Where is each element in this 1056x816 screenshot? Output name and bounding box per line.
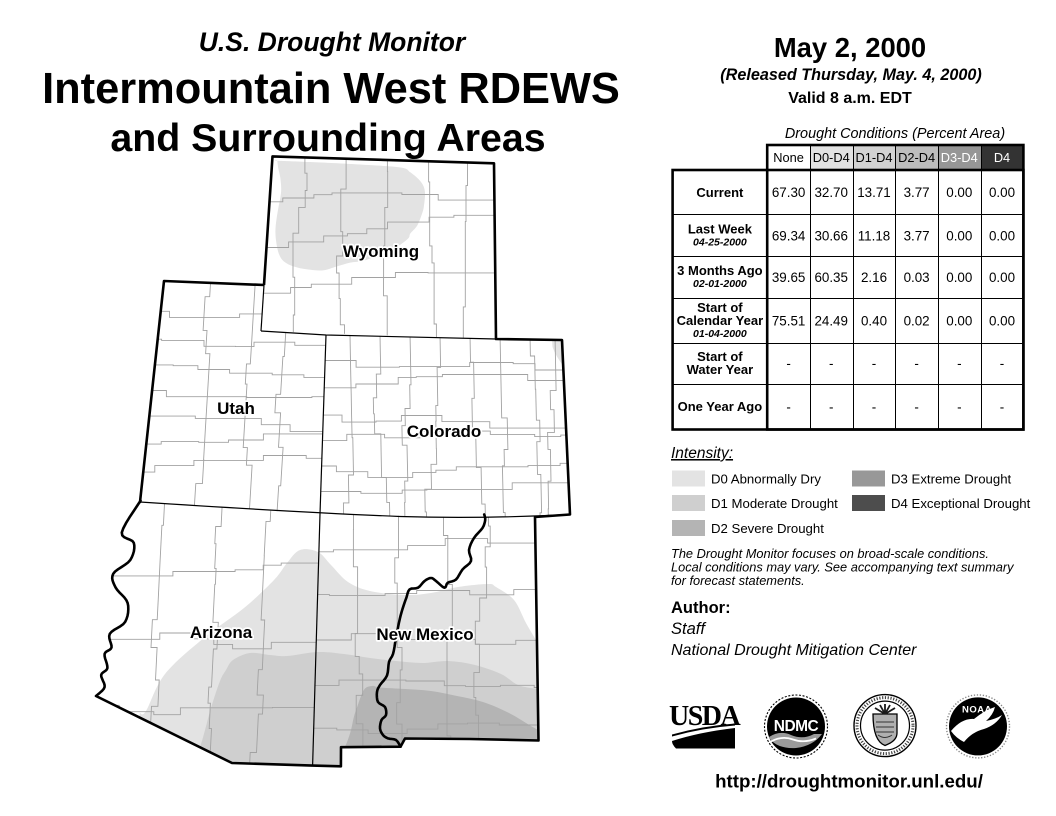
svg-text:0.00: 0.00 (989, 270, 1015, 285)
svg-text:Author:: Author: (671, 599, 731, 617)
svg-text:01-04-2000: 01-04-2000 (693, 328, 747, 340)
svg-text:3.77: 3.77 (904, 185, 930, 200)
svg-text:0.00: 0.00 (946, 185, 972, 200)
svg-text:02-01-2000: 02-01-2000 (693, 278, 747, 290)
svg-text:0.00: 0.00 (946, 314, 972, 329)
svg-text:http://droughtmonitor.unl.edu/: http://droughtmonitor.unl.edu/ (715, 771, 984, 792)
svg-text:D0-D4: D0-D4 (813, 150, 850, 165)
svg-text:Calendar Year: Calendar Year (677, 313, 763, 328)
svg-text:0.03: 0.03 (904, 270, 930, 285)
svg-text:for forecast statements.: for forecast statements. (671, 573, 805, 588)
svg-text:0.00: 0.00 (946, 229, 972, 244)
svg-text:Intensity:: Intensity: (671, 445, 733, 462)
svg-text:Staff: Staff (671, 620, 707, 638)
svg-text:Intermountain West RDEWS: Intermountain West RDEWS (42, 65, 620, 113)
svg-text:-: - (1000, 400, 1004, 415)
svg-text:-: - (914, 400, 918, 415)
svg-text:-: - (829, 400, 833, 415)
svg-text:Colorado: Colorado (407, 422, 482, 441)
svg-text:D3-D4: D3-D4 (941, 150, 978, 165)
svg-text:NOAA: NOAA (962, 705, 992, 716)
svg-text:0.00: 0.00 (989, 314, 1015, 329)
svg-text:04-25-2000: 04-25-2000 (693, 237, 747, 249)
svg-text:32.70: 32.70 (814, 185, 848, 200)
svg-text:Current: Current (696, 185, 744, 200)
svg-text:One Year Ago: One Year Ago (678, 399, 763, 414)
svg-text:Water Year: Water Year (687, 362, 754, 377)
svg-text:None: None (773, 150, 804, 165)
svg-text:and Surrounding Areas: and Surrounding Areas (110, 116, 545, 160)
svg-text:(Released Thursday, May. 4, 20: (Released Thursday, May. 4, 2000) (720, 66, 982, 84)
svg-text:Wyoming: Wyoming (343, 242, 419, 261)
svg-text:Valid 8 a.m. EDT: Valid 8 a.m. EDT (788, 90, 912, 107)
svg-text:-: - (1000, 356, 1004, 371)
svg-text:Last Week: Last Week (688, 222, 753, 237)
svg-text:U.S. Drought Monitor: U.S. Drought Monitor (199, 27, 467, 57)
svg-text:2.16: 2.16 (861, 270, 887, 285)
svg-text:May 2, 2000: May 2, 2000 (774, 32, 926, 63)
svg-text:0.00: 0.00 (989, 229, 1015, 244)
svg-text:-: - (786, 400, 790, 415)
svg-text:D0 Abnormally Dry: D0 Abnormally Dry (711, 472, 821, 487)
svg-text:-: - (957, 400, 961, 415)
svg-text:-: - (914, 356, 918, 371)
svg-text:39.65: 39.65 (772, 270, 806, 285)
svg-text:D4: D4 (994, 150, 1010, 165)
svg-text:11.18: 11.18 (858, 229, 891, 244)
svg-text:-: - (872, 400, 876, 415)
svg-text:-: - (829, 356, 833, 371)
svg-text:-: - (957, 356, 961, 371)
svg-text:Arizona: Arizona (190, 623, 253, 642)
svg-text:0.00: 0.00 (989, 185, 1015, 200)
svg-text:D2 Severe Drought: D2 Severe Drought (711, 521, 824, 536)
svg-text:13.71: 13.71 (857, 185, 891, 200)
svg-text:67.30: 67.30 (772, 185, 806, 200)
svg-text:D2-D4: D2-D4 (898, 150, 935, 165)
svg-text:3.77: 3.77 (904, 229, 930, 244)
svg-text:3 Months Ago: 3 Months Ago (677, 263, 763, 278)
svg-text:D1 Moderate Drought: D1 Moderate Drought (711, 496, 838, 511)
svg-text:75.51: 75.51 (772, 314, 806, 329)
svg-text:-: - (786, 356, 790, 371)
svg-text:0.00: 0.00 (946, 270, 972, 285)
svg-text:National Drought Mitigation Ce: National Drought Mitigation Center (671, 642, 917, 659)
svg-text:D1-D4: D1-D4 (856, 150, 893, 165)
svg-text:-: - (872, 356, 876, 371)
svg-text:0.40: 0.40 (861, 314, 887, 329)
svg-text:0.02: 0.02 (904, 314, 930, 329)
svg-text:24.49: 24.49 (814, 314, 848, 329)
svg-text:Utah: Utah (217, 399, 255, 418)
svg-text:69.34: 69.34 (772, 229, 806, 244)
svg-text:NDMC: NDMC (774, 718, 819, 735)
svg-text:New Mexico: New Mexico (376, 625, 473, 644)
svg-text:60.35: 60.35 (814, 270, 848, 285)
svg-text:D4 Exceptional Drought: D4 Exceptional Drought (891, 496, 1031, 511)
svg-text:30.66: 30.66 (814, 229, 848, 244)
svg-text:Drought Conditions (Percent Ar: Drought Conditions (Percent Area) (785, 126, 1005, 142)
svg-text:D3 Extreme Drought: D3 Extreme Drought (891, 472, 1012, 487)
